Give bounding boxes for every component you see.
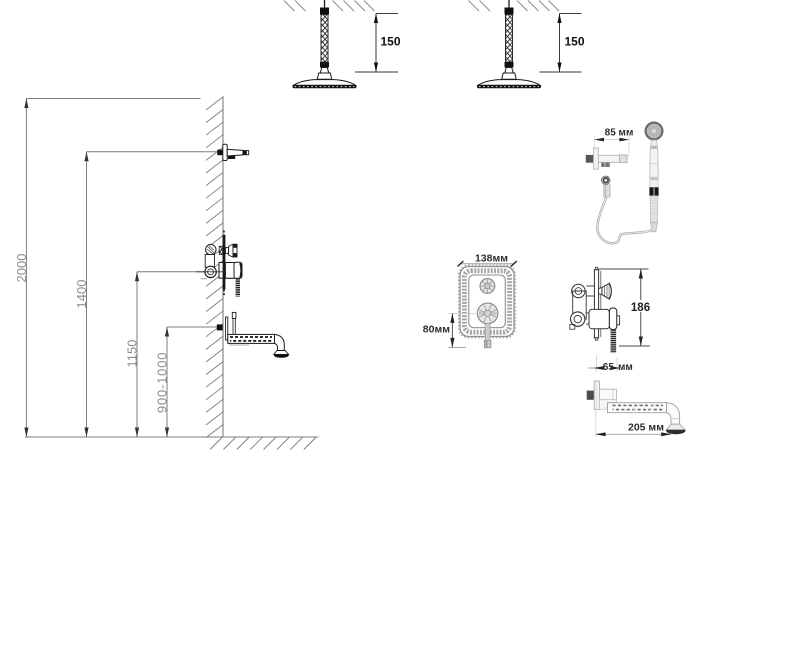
svg-text:150: 150 [565, 34, 585, 48]
svg-text:мм: мм [618, 362, 633, 373]
svg-text:1150: 1150 [124, 340, 139, 368]
svg-text:2000: 2000 [14, 254, 29, 283]
svg-text:900-1000: 900-1000 [154, 352, 169, 413]
svg-text:150: 150 [381, 34, 401, 48]
svg-text:205 мм: 205 мм [628, 422, 664, 434]
svg-text:1400: 1400 [74, 280, 89, 309]
svg-text:65: 65 [603, 362, 615, 373]
svg-text:138мм: 138мм [475, 252, 508, 264]
svg-text:186: 186 [631, 302, 650, 314]
svg-text:80мм: 80мм [423, 324, 450, 336]
